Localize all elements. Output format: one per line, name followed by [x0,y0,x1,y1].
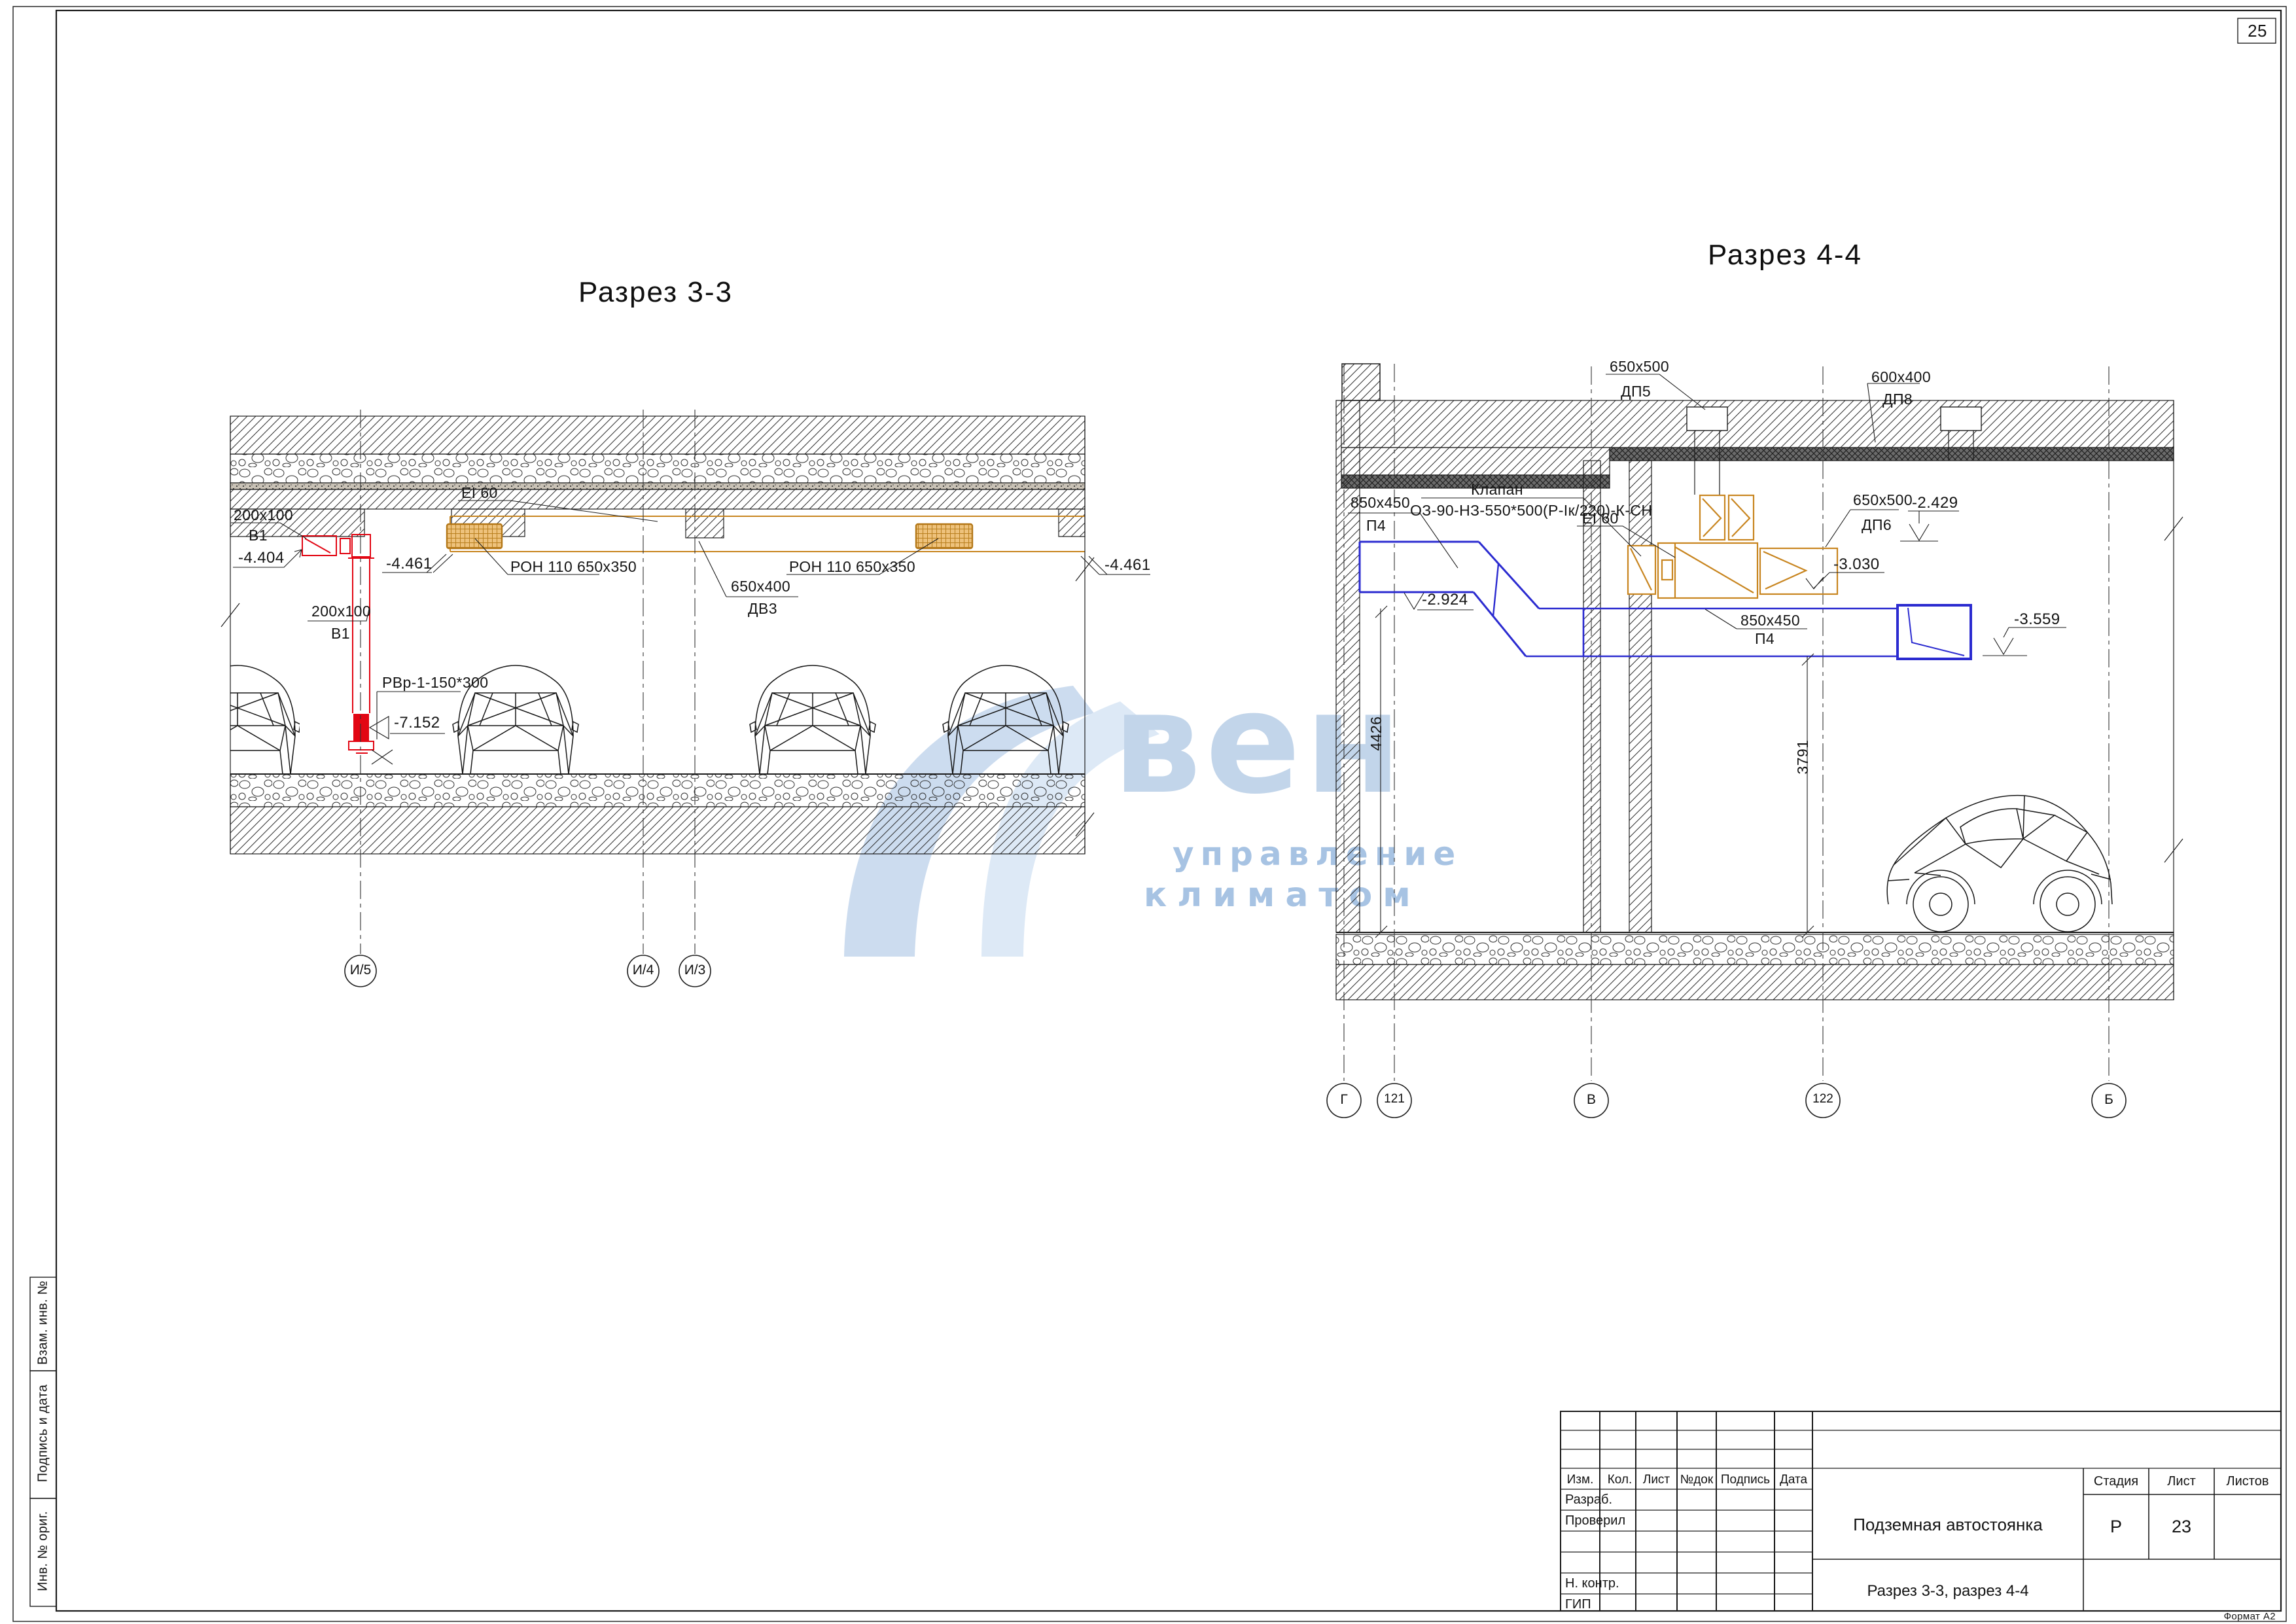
tb-row-proveril: Проверил [1565,1513,1625,1528]
label-duct-size: 650х400 [731,578,790,594]
tb-col-podpis: Подпись [1716,1473,1775,1487]
margin-label: Инв. № ориг. [37,1499,50,1604]
axis-bubbles-44 [1327,1084,2126,1118]
tb-sheet-title: Разрез 3-3, разрез 4-4 [1812,1582,2083,1600]
exhaust-duct-v1 [302,535,374,753]
valve-title: Клапан [1471,482,1523,497]
label-duct-size: 850х450 [1351,495,1410,510]
title-block [1561,1411,2281,1611]
elevation-mark: -2.924 [1422,591,1468,608]
tb-col-kol: Кол. [1604,1473,1636,1487]
tb-row-razrab: Разраб. [1565,1492,1612,1508]
fire-rating-label: EI 60 [1582,510,1619,526]
elevation-mark: -3.559 [2014,611,2060,627]
fire-rating-label: EI 60 [461,485,498,501]
axis-bubble: И/3 [669,962,721,978]
grille-label: РОН 110 650х350 [510,559,637,574]
axis-bubble: Б [2083,1092,2135,1108]
elevation-mark: -4.461 [1104,557,1150,573]
valve-label: РВр-1-150*300 [382,675,488,690]
tb-col-ndok: №док [1677,1473,1716,1487]
axis-bubble: И/5 [334,962,387,978]
label-duct-size: 850х450 [1740,612,1800,628]
format-label: Формат А2 [2146,1612,2276,1622]
elevation-mark: -2.429 [1912,495,1958,511]
label-duct-size: 650х500 [1610,359,1669,374]
fan-unit-dp6 [1628,495,1837,598]
tb-col-data: Дата [1775,1473,1812,1487]
label-duct-name: В1 [331,626,350,641]
elevation-mark: -4.404 [238,550,284,566]
tb-row-gip: ГИП [1565,1597,1591,1612]
section-3-3-linework [175,410,1150,987]
tb-col-list: Лист [1636,1473,1677,1487]
axis-bubble: Г [1318,1092,1370,1108]
elevation-mark: -7.152 [394,715,440,731]
axis-bubble: 122 [1797,1092,1849,1106]
tb-project-name: Подземная автостоянка [1812,1515,2083,1535]
axis-bubble: И/4 [617,962,669,978]
tb-lists-label: Листов [2214,1474,2281,1489]
grille-label: РОН 110 650х350 [789,559,915,574]
margin-label: Подпись и дата [37,1381,50,1486]
page-number: 25 [2239,22,2276,40]
drawing-sheet: вен управление климатом [0,0,2296,1624]
label-duct-name: В1 [249,527,268,543]
drawing-canvas [0,0,2296,1624]
label-duct-name: ДВ3 [748,601,777,616]
dimension-text: 3791 [1795,718,1810,796]
section-4-4-linework [1327,364,2183,1118]
axis-bubble: В [1565,1092,1617,1108]
dimension-text: 4426 [1368,694,1384,773]
tb-list-label: Лист [2149,1474,2214,1489]
label-duct-name: ДП5 [1621,383,1651,399]
label-duct-name: ДП8 [1882,391,1913,407]
label-duct-name: ДП6 [1862,517,1892,533]
axis-bubble: 121 [1368,1092,1421,1106]
car-silhouette-44 [1887,796,2112,932]
tb-row-nkontr: Н. контр. [1565,1576,1619,1591]
elevation-mark: -4.461 [386,556,432,572]
label-duct-name: П4 [1366,518,1386,533]
margin-label: Взам. инв. № [37,1271,50,1375]
tb-col-izm: Изм. [1561,1473,1600,1487]
tb-stage-label: Стадия [2083,1474,2149,1489]
label-duct-name: П4 [1755,631,1775,646]
car-silhouettes-33 [175,665,1069,774]
section-4-4-title: Разрез 4-4 [1708,240,1862,270]
elevation-mark: -3.030 [1833,556,1879,573]
tb-list-value: 23 [2149,1517,2214,1537]
tb-stage-value: Р [2083,1517,2149,1537]
label-duct-size: 600х400 [1871,369,1931,385]
section-3-3-title: Разрез 3-3 [578,277,733,308]
label-duct-size: 650х500 [1853,492,1913,508]
label-duct-size: 200x100 [234,507,293,523]
label-duct-size: 200х100 [311,603,371,619]
